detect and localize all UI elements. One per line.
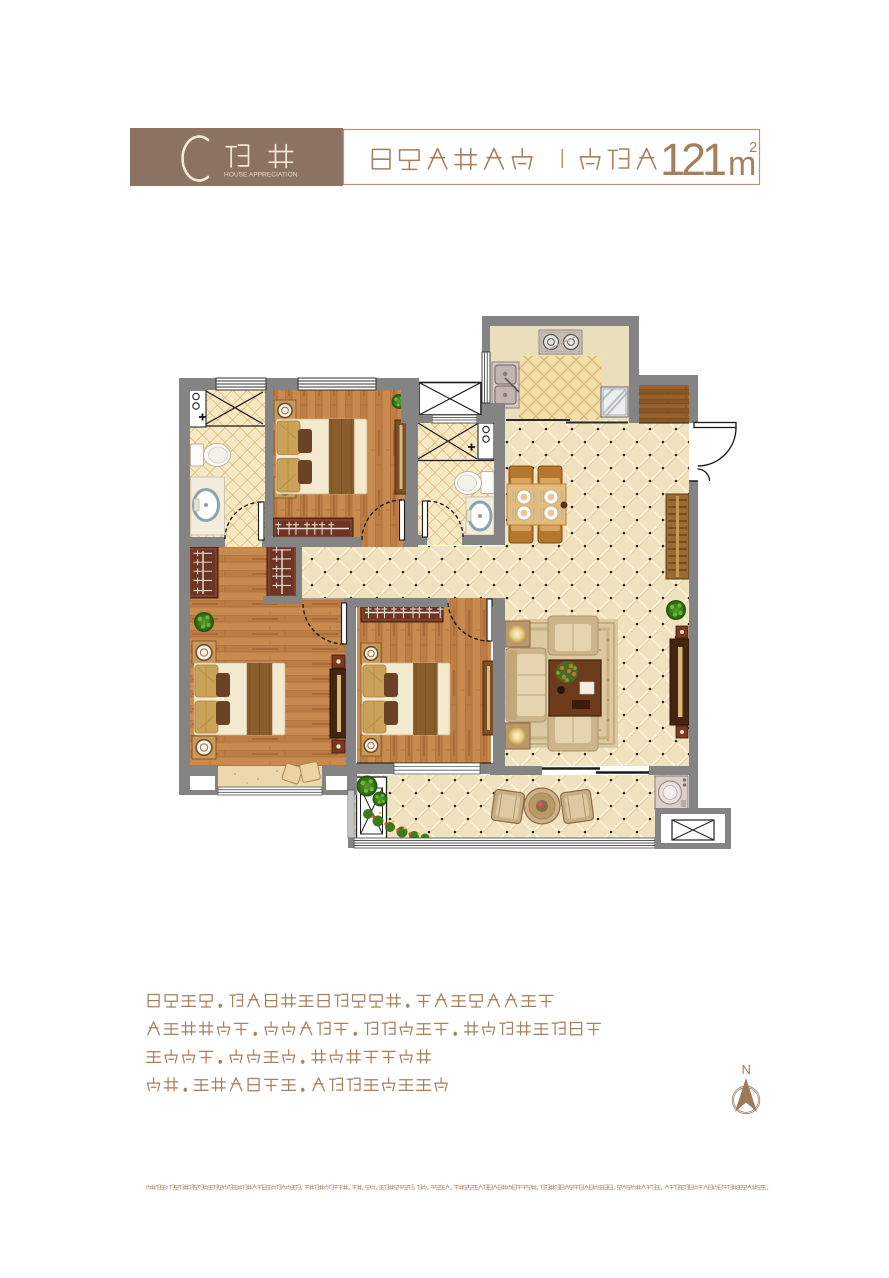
svg-text:2: 2 — [749, 139, 757, 156]
svg-text:121: 121 — [660, 134, 727, 185]
svg-text:N: N — [742, 1062, 751, 1077]
svg-text:HOUSE APPRECIATION: HOUSE APPRECIATION — [224, 172, 298, 179]
